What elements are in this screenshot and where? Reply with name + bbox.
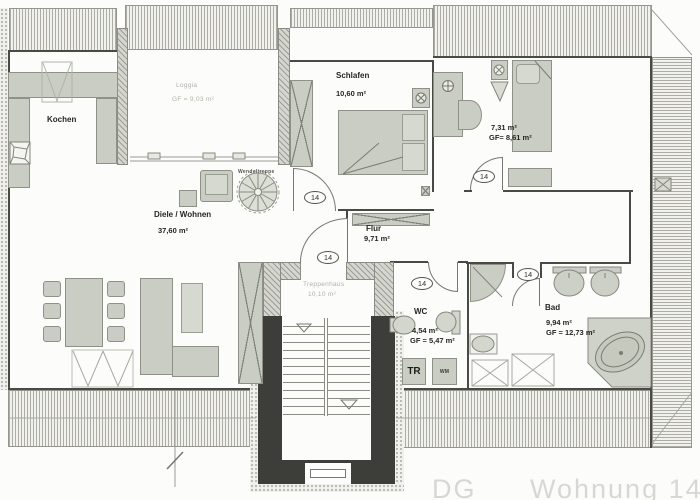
sofa-vertical [140,278,173,375]
label-schlafen-area: 10,60 m² [336,89,366,98]
stairwell-stipple-right [395,311,404,492]
label-kochen: Kochen [47,115,76,124]
label-bad-area: 9,94 m² [546,318,572,327]
dining-chair [43,326,61,342]
wall-right-section-top [433,56,652,58]
bench-zimmer [508,168,552,187]
dining-chair [43,281,61,297]
window-symbols-living [72,350,133,387]
stairwell-stipple-bottom [250,484,404,492]
single-bed-pillow [516,64,540,84]
bad-toilet-icon [470,334,497,354]
label-flur: Flur [366,224,381,233]
door-arc-bad [512,278,540,306]
floor-plan: TR WM [0,0,700,500]
wall-corridor-bottom [503,190,633,192]
dining-chair [107,303,125,319]
label-bad-gf: GF = 12,73 m² [546,328,595,337]
label-zimmer-gf: GF= 8,61 m² [489,133,532,142]
wardrobe-living [238,262,263,384]
label-loggia-gf: GF = 9,03 m² [172,96,214,103]
label-loggia: Loggia [176,82,197,89]
dining-table [65,278,103,347]
label-treppenhaus: Treppenhaus [303,281,344,288]
wall-schlafen-top [289,60,434,62]
nightstand [412,88,430,108]
shower [470,264,506,302]
sideboard-flur [352,213,430,226]
sofa-horizontal [172,346,219,377]
washing-machine-label: WM [440,369,449,375]
door-tag-zimmer: 14 [473,170,495,183]
stair-flight-right [328,320,370,415]
wc-sink-icon [436,311,460,334]
wall-schlafen-bottom [338,209,434,211]
wall-bad-top-right [540,262,630,264]
dining-chair [43,303,61,319]
roof-band-top-right [433,5,652,57]
stairwell-entrance-sill [310,469,346,478]
dryer-box: TR [402,358,426,385]
armchair-inner [205,174,228,195]
label-flur-area: 9,71 m² [364,234,390,243]
watermark-dg: DG [432,474,477,500]
stairwell-wall-right [371,316,395,484]
bad-kneewall-closets [472,354,554,386]
label-schlafen: Schlafen [336,71,369,80]
label-zimmer-area: 7,31 m² [491,123,517,132]
door-tag-bad: 14 [517,268,539,281]
door-tag-text: 14 [524,270,532,279]
door-arc-wc [428,262,458,292]
label-diele-area: 37,60 m² [158,226,188,235]
kitchen-counter-left [8,98,30,188]
wall-bad-door-stub-right [540,262,542,278]
stair-flight-left [283,320,324,415]
wall-corridor-right [629,190,631,264]
label-treppenhaus-area: 10,10 m² [308,291,336,298]
bathtub-icon [588,318,651,387]
door-arc-schlafen [293,168,336,211]
label-wc: WC [414,307,427,316]
roof-band-left-strip [0,8,8,390]
dining-chair [107,326,125,342]
door-tag-schlafen: 14 [304,191,326,204]
wall-bad-bottom [389,388,652,390]
kitchen-counter-right [96,98,117,164]
roof-band-top-loggia [125,5,278,50]
door-tag-text: 14 [305,192,325,203]
dining-chair [107,281,125,297]
label-bad: Bad [545,303,560,312]
wall-zimmer-bottom-stub [464,190,472,192]
corner-basin-zimmer [491,60,508,80]
sideboard [181,283,203,333]
washing-machine-box: WM [432,358,457,385]
wardrobe-schlafen [290,80,313,167]
roof-band-bottom-left [8,390,258,447]
roof-band-top-schlafen [290,8,433,28]
dryer-label: TR [407,366,420,377]
desk-chair [458,100,482,130]
door-tag-text: 14 [324,253,332,262]
bed-pillow [402,143,425,171]
bed-pillow [402,114,425,141]
wall-bad-door-stub-left [512,262,514,278]
kitchen-counter-top [8,72,118,98]
loggia-railing [130,153,278,161]
wall-kitchen-top [8,50,118,52]
pier-loggia-right [278,28,290,165]
side-table [179,190,197,207]
label-wc-area: 4,54 m² [412,326,438,335]
door-tag-entry: 14 [317,251,339,264]
spiral-stair-icon [237,171,279,213]
roof-band-bottom-right [395,390,652,448]
label-wc-gf: GF = 5,47 m² [410,336,455,345]
door-tag-text: 14 [418,279,426,288]
stairwell-pier-top-left-v [263,262,281,318]
floor-drain-marker [421,186,430,196]
door-tag-wc: 14 [411,277,433,290]
watermark-wohnung: Wohnung 14 [530,474,700,500]
wall-wohnen-bottom [8,388,259,390]
bad-basin-icons [553,267,621,296]
label-wendeltreppe: Wendeltreppe [238,169,275,175]
label-diele: Diele / Wohnen [154,210,211,219]
stairwell-pier-top-right-v [374,262,394,318]
roof-band-right [652,57,692,448]
stair-stringer [324,318,328,416]
wall-wc-top-left [390,261,428,263]
door-tag-text: 14 [480,172,488,181]
wall-wc-bad-divider [467,262,469,390]
pier-loggia-left [117,28,128,165]
roof-band-top-left [9,8,117,52]
